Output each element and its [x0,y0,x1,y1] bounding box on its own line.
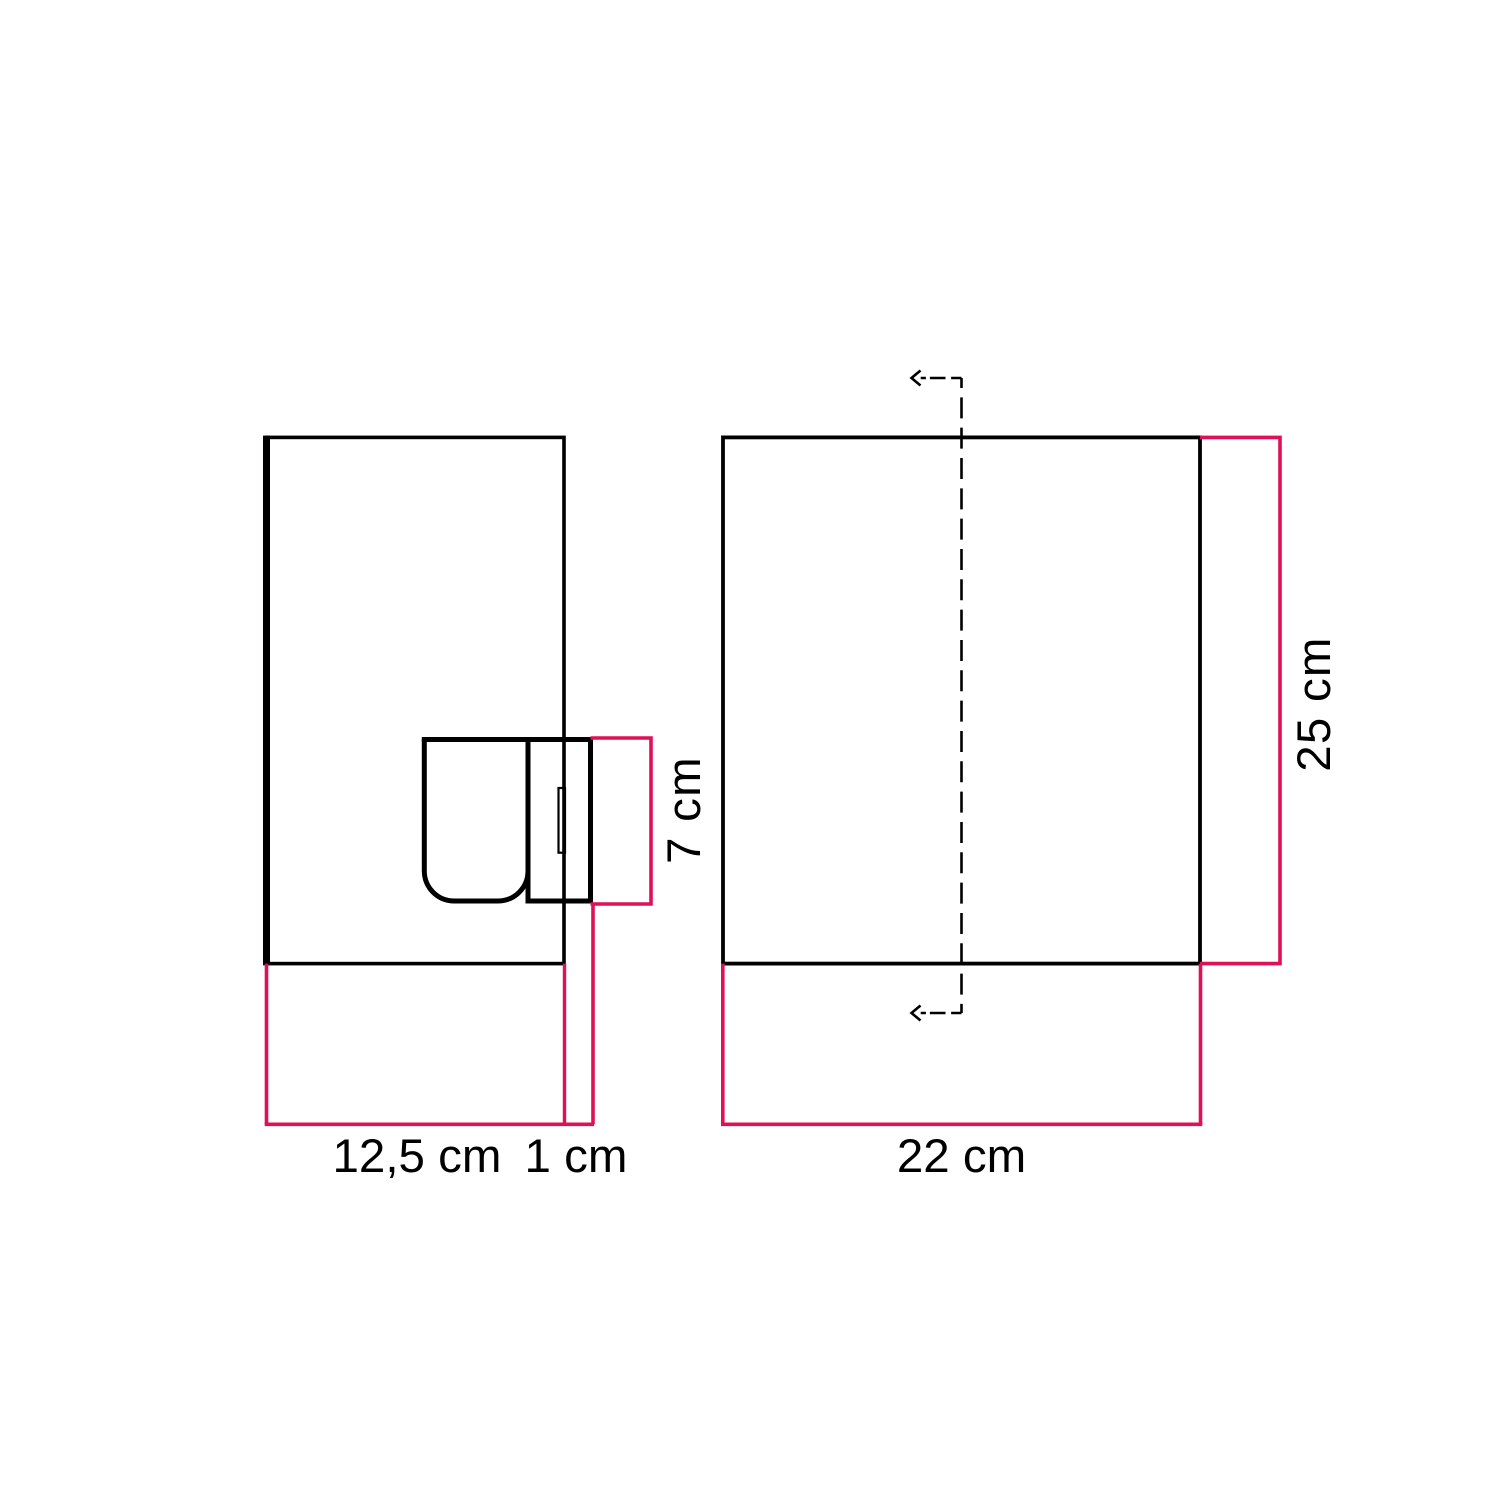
svg-text:12,5 cm: 12,5 cm [333,1130,502,1183]
svg-text:22 cm: 22 cm [897,1130,1026,1183]
svg-text:25 cm: 25 cm [1288,636,1341,771]
svg-text:7 cm: 7 cm [658,756,711,864]
svg-text:1 cm: 1 cm [525,1130,628,1183]
